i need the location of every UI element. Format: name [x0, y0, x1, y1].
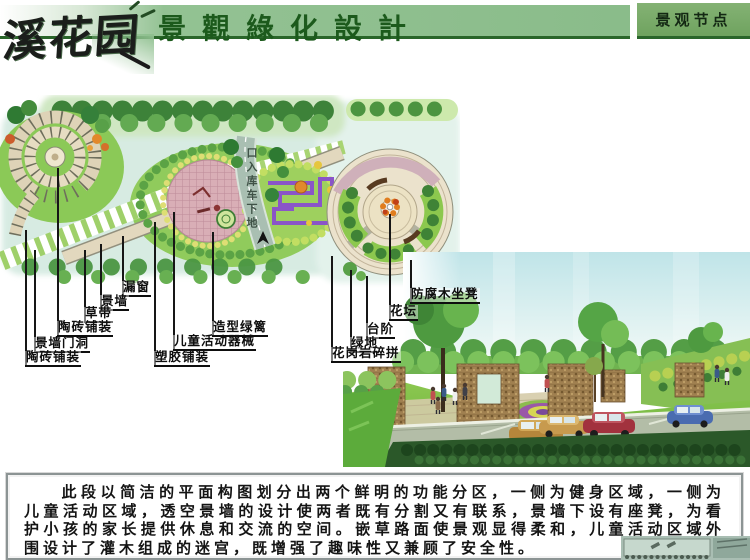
tree-row-top	[62, 99, 458, 123]
label-shaped-hedge: 造型绿篱	[212, 321, 268, 337]
label-granite-paving: 花岗岩碎拼	[331, 347, 401, 363]
wall-opening	[477, 374, 501, 404]
label-rubber-paving: 塑胶铺装	[154, 351, 210, 367]
label-wood-bench: 防腐木坐凳	[410, 288, 480, 304]
label-play-equipment: 儿童活动器械	[173, 335, 256, 351]
leader-line	[173, 212, 175, 349]
overview-map-thumbnail	[621, 536, 750, 560]
label-flower-bed: 花坛	[389, 305, 418, 321]
label-clay-brick-paving-2: 陶砖铺装	[25, 351, 81, 367]
road-label-vertical: 口入库车下地	[243, 147, 259, 231]
leader-line	[25, 230, 27, 365]
presentation-page: 景觀綠化設計 景观节点 溪花园	[0, 0, 750, 560]
logo-calligraphy: 溪花园	[1, 0, 143, 70]
corner-tab: 景观节点	[637, 3, 750, 39]
perspective-rendering	[343, 252, 750, 467]
leader-line	[57, 168, 59, 335]
label-clay-brick-paving: 陶砖铺装	[57, 321, 113, 337]
leader-line	[154, 222, 156, 365]
corner-tab-label: 景观节点	[655, 9, 731, 30]
page-title: 景觀綠化設計	[158, 7, 422, 47]
